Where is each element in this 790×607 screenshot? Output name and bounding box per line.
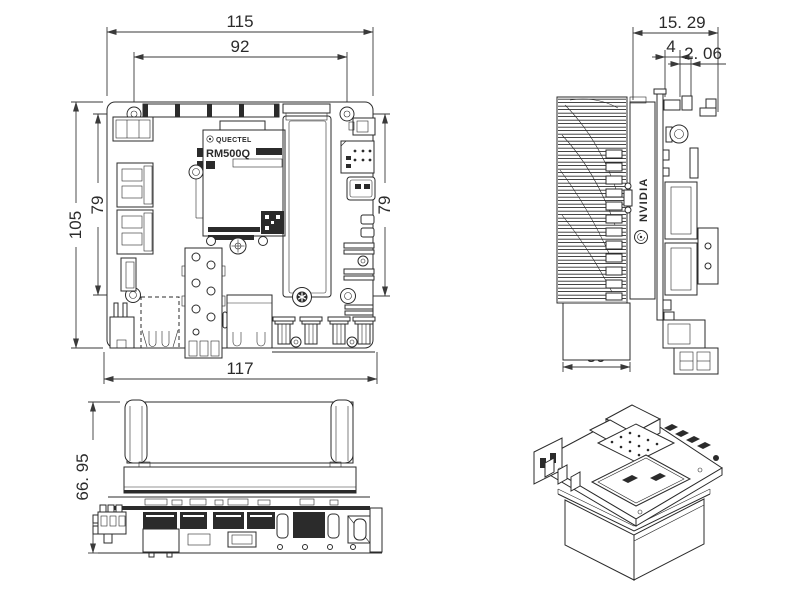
- jetson-module-edge: NVIDIA: [624, 97, 655, 299]
- rm500q-module: QUECTEL RM500Q: [189, 121, 285, 254]
- heatsink-base: [563, 303, 630, 360]
- heatsink-post: [125, 400, 147, 463]
- module-screw: [189, 165, 203, 179]
- dim-height-total: 66. 95: [73, 453, 92, 500]
- io-slot-large: [293, 512, 325, 538]
- front-view: 66. 95: [73, 400, 382, 557]
- dim-overhang-small: 2. 06: [684, 44, 722, 63]
- isometric-view: [534, 405, 722, 580]
- front-heatsink: [124, 400, 356, 494]
- sim-slot: [341, 141, 374, 173]
- power-terminal: [110, 317, 134, 348]
- module-brand: QUECTEL: [216, 137, 252, 144]
- dim-width-holes: 92: [231, 37, 250, 56]
- rj45-front: [143, 529, 179, 552]
- dim-overhang-mid: 4: [666, 37, 675, 56]
- front-pcb: [108, 497, 370, 510]
- sma-side: [670, 125, 688, 143]
- io-slot: [180, 512, 207, 529]
- dim-width-bottom: 117: [226, 359, 253, 378]
- iso-antenna: [713, 455, 719, 461]
- terminal-block: [113, 117, 153, 141]
- dim-height-outer: 105: [66, 211, 85, 239]
- heatsink-fins: [557, 97, 627, 303]
- engineering-drawing: 115 92 105 79 79 117: [0, 0, 790, 607]
- dim-overhang-total: 15. 29: [658, 13, 705, 32]
- iso-sma: [664, 424, 678, 431]
- front-connector-row: [93, 505, 382, 557]
- dim-height-holes-right: 79: [375, 196, 394, 215]
- io-slot: [213, 512, 244, 529]
- button: [361, 228, 374, 237]
- power-jack: [353, 118, 375, 135]
- dim-width-outer: 115: [226, 12, 253, 31]
- dim-height-holes-left: 79: [88, 196, 107, 215]
- top-view: 115 92 105 79 79 117: [66, 12, 394, 384]
- button: [361, 215, 374, 224]
- side-view: 15. 29 4 2. 06 30 NVIDIA: [557, 13, 726, 374]
- rj45-connector: [223, 295, 272, 348]
- terminal-block-front: [98, 512, 126, 534]
- header-connector: [665, 243, 697, 295]
- side-connectors: [663, 96, 718, 374]
- nvidia-logo-text: NVIDIA: [638, 178, 650, 222]
- side-pcb: [654, 89, 666, 320]
- io-slot: [247, 512, 275, 529]
- header-connector: [665, 182, 697, 239]
- module-model: RM500Q: [206, 148, 250, 160]
- io-slot: [143, 512, 177, 529]
- sfp-cage: [182, 248, 225, 358]
- drawing-canvas: 115 92 105 79 79 117: [0, 0, 790, 607]
- heatsink-post: [331, 400, 353, 463]
